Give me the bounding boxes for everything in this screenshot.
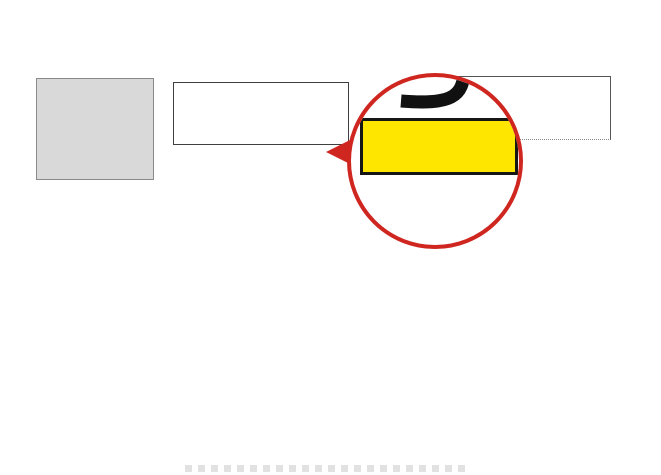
magnified-booth-highlight — [360, 118, 518, 175]
gray-building-block — [36, 78, 154, 180]
cropped-caption-artifact — [185, 465, 470, 472]
magnifier-circle — [347, 73, 523, 249]
exhibition-floorplan — [0, 0, 661, 475]
hall7-entrance-sign — [173, 82, 349, 145]
